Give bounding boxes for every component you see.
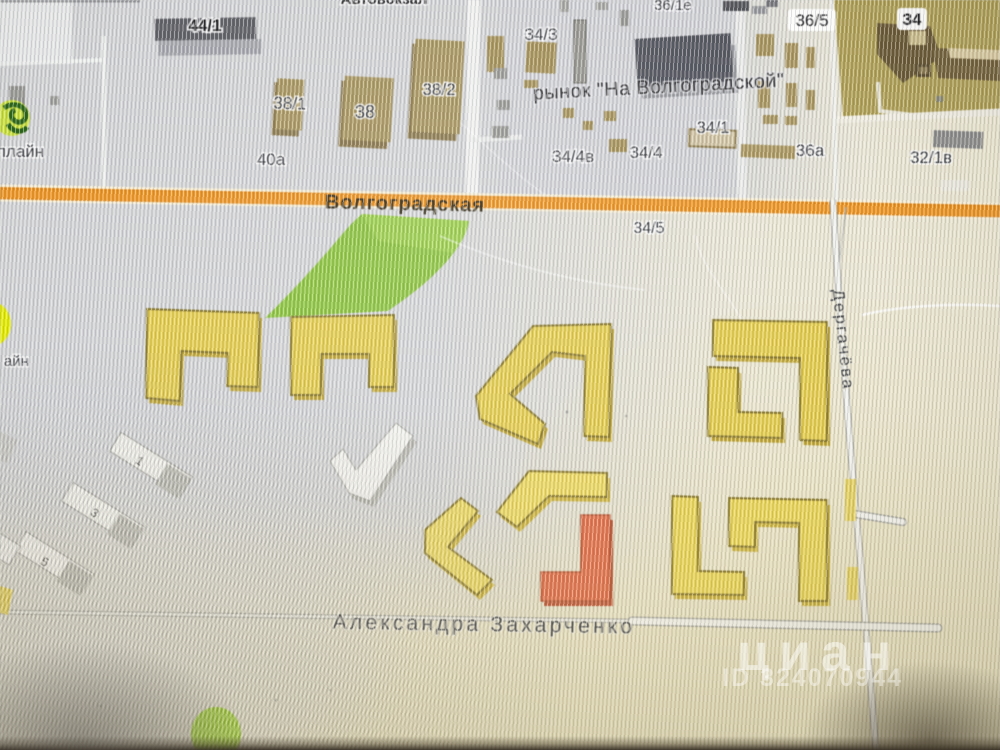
- svg-text:Александра Захарченко: Александра Захарченко: [333, 611, 636, 639]
- svg-text:32/1в: 32/1в: [910, 148, 952, 167]
- svg-text:34: 34: [903, 10, 922, 29]
- svg-text:34/5: 34/5: [633, 220, 664, 237]
- svg-text:36/1е: 36/1е: [654, 0, 692, 14]
- svg-text:Автовокзал: Автовокзал: [341, 0, 428, 8]
- svg-text:Волгоградская: Волгоградская: [325, 191, 486, 216]
- svg-text:34/4в: 34/4в: [552, 147, 594, 166]
- svg-text:36/5: 36/5: [795, 11, 828, 30]
- svg-text:38: 38: [355, 102, 375, 122]
- svg-text:40а: 40а: [257, 150, 286, 169]
- svg-text:34/4: 34/4: [629, 143, 662, 162]
- svg-text:36а: 36а: [796, 141, 825, 160]
- svg-text:38/2: 38/2: [422, 80, 455, 99]
- svg-text:айн: айн: [4, 353, 29, 370]
- svg-text:ллайн: ллайн: [0, 142, 44, 161]
- svg-text:34/1: 34/1: [696, 118, 729, 137]
- svg-text:44/1: 44/1: [188, 16, 221, 35]
- svg-text:34/3: 34/3: [524, 25, 557, 44]
- svg-text:38/1: 38/1: [273, 93, 307, 113]
